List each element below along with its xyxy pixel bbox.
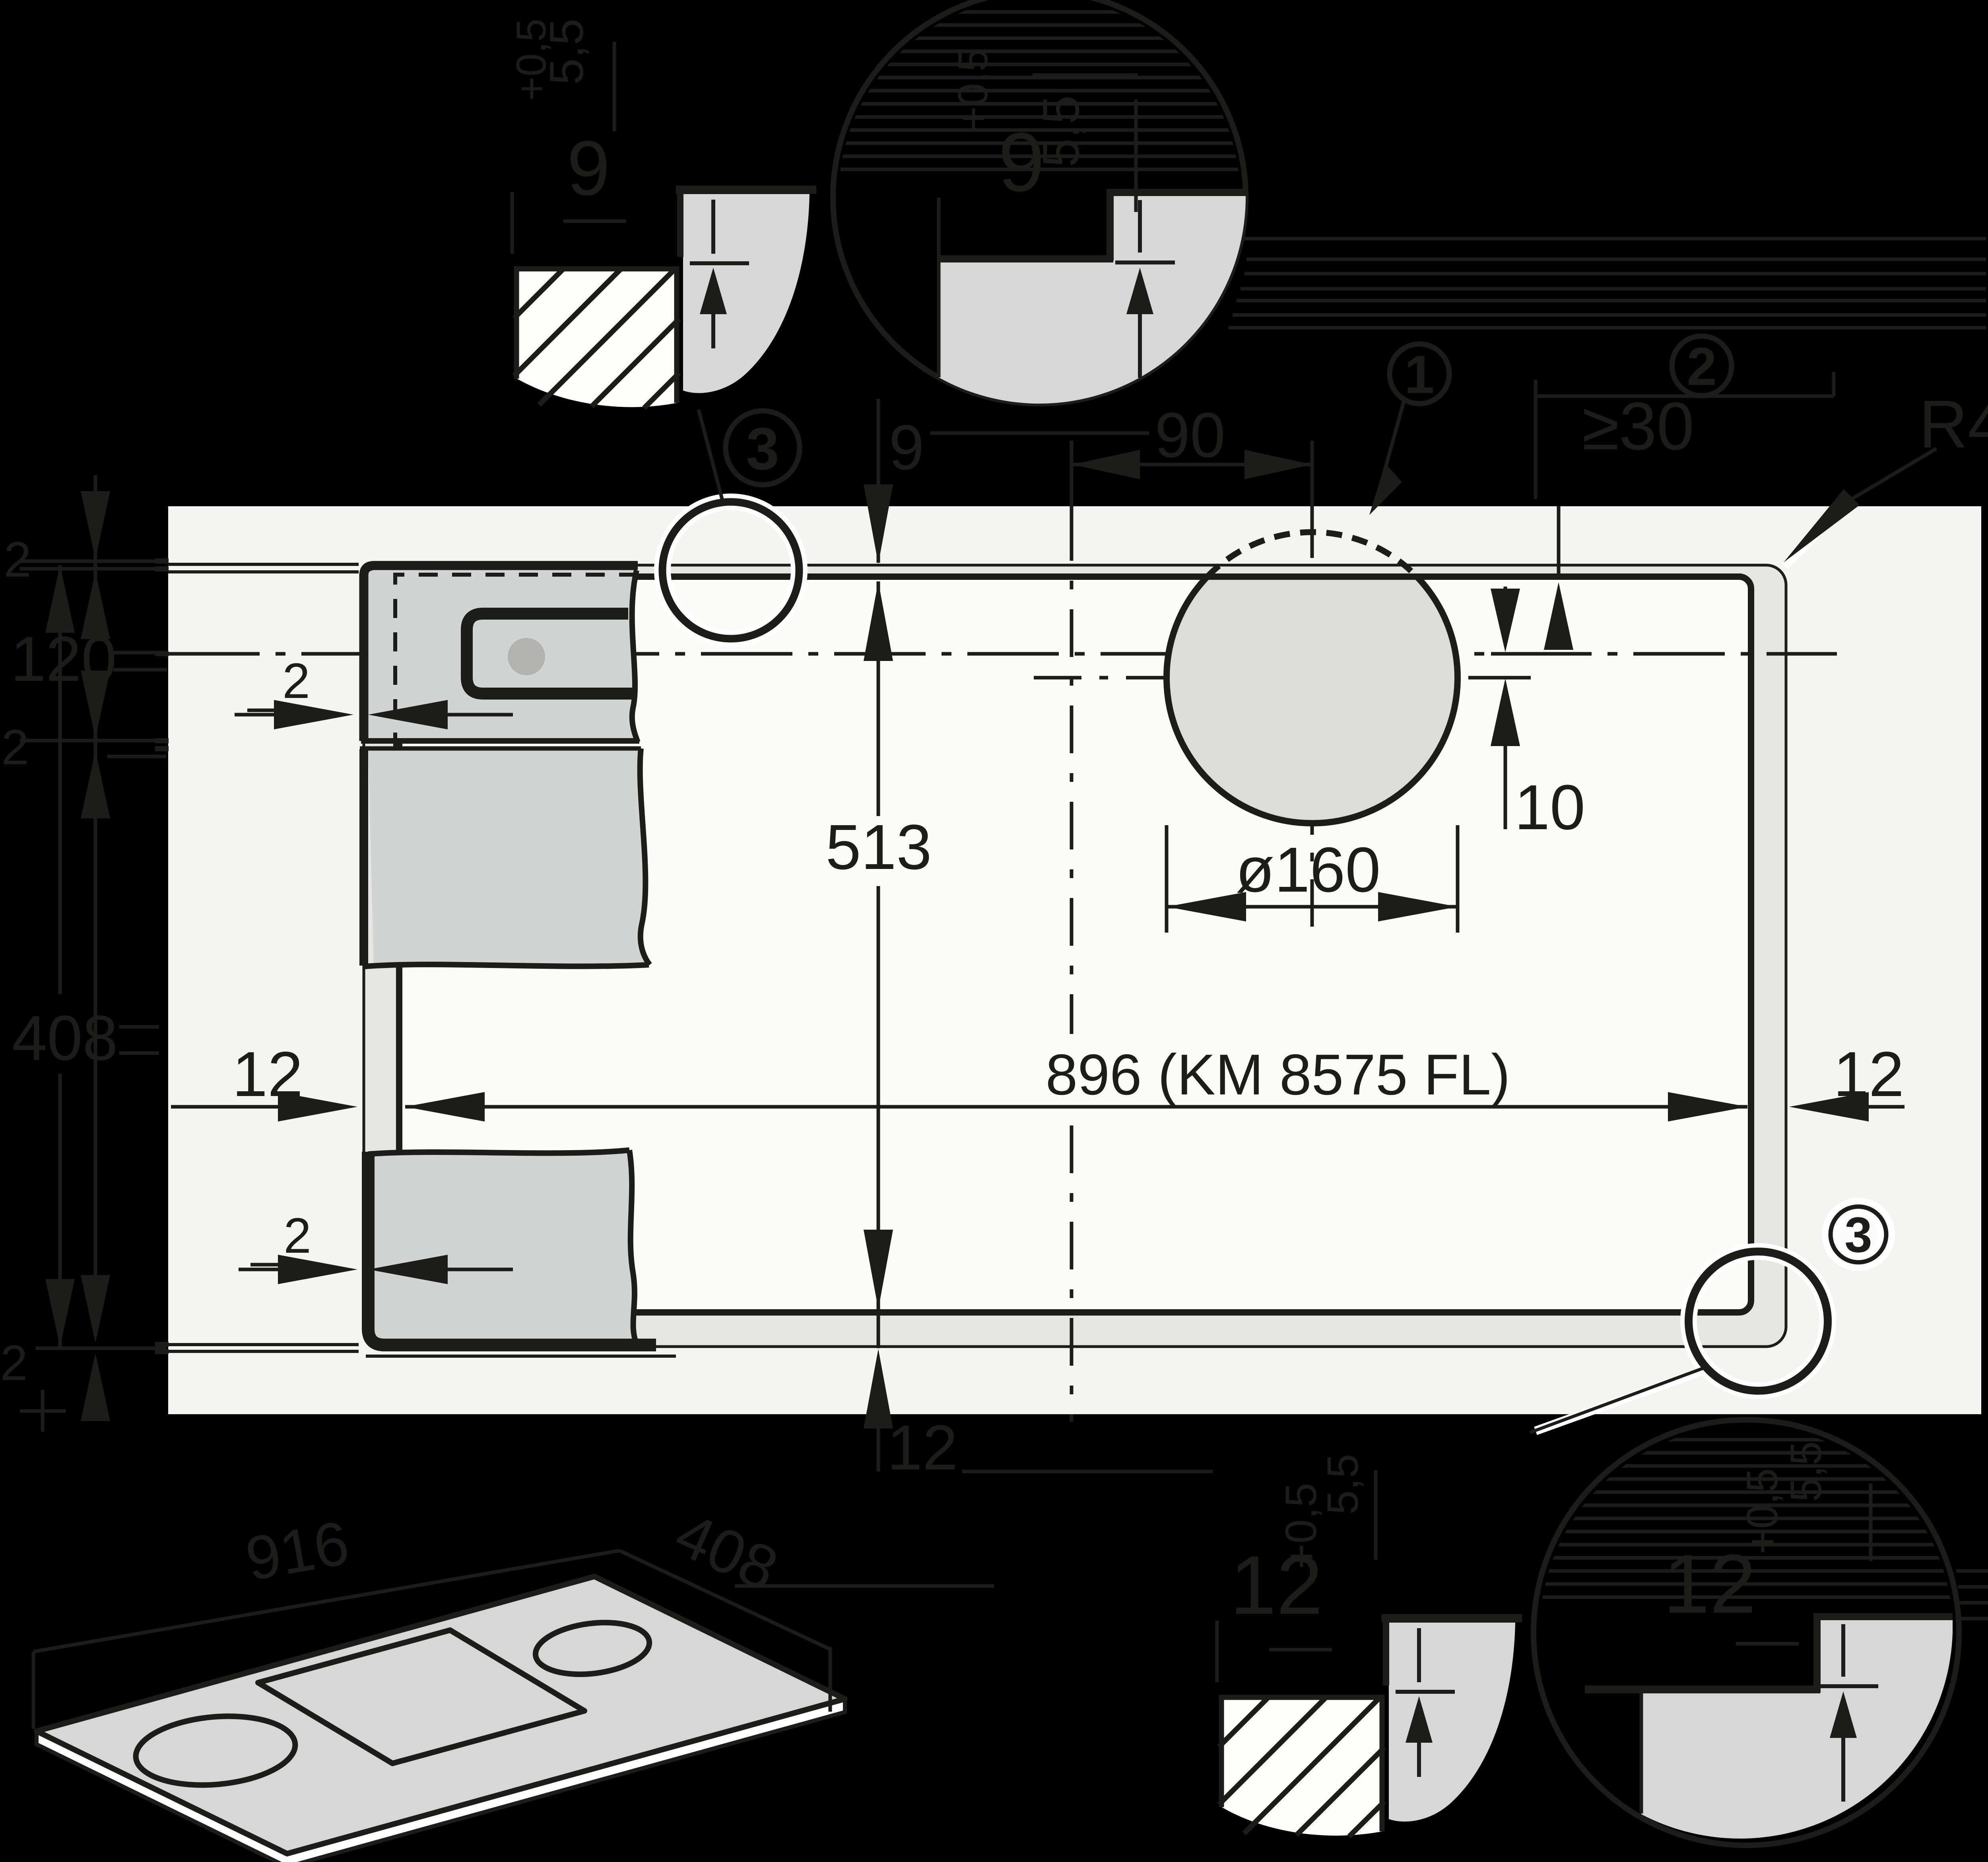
- svg-text:1: 1: [1404, 344, 1434, 404]
- svg-text:2: 2: [283, 1208, 311, 1263]
- svg-text:513: 513: [826, 811, 932, 882]
- svg-text:5,5: 5,5: [1782, 1441, 1831, 1502]
- svg-text:+0,5: +0,5: [1738, 1468, 1787, 1554]
- svg-text:5,5: 5,5: [1318, 1454, 1367, 1515]
- svg-text:2: 2: [0, 1335, 28, 1391]
- svg-text:5,5: 5,5: [1032, 95, 1090, 167]
- svg-text:ø160: ø160: [1236, 834, 1381, 905]
- svg-text:896 (KM 8575 FL): 896 (KM 8575 FL): [1046, 1042, 1510, 1107]
- svg-text:R4: R4: [1919, 387, 1988, 462]
- svg-text:9: 9: [567, 125, 610, 212]
- svg-text:408: 408: [12, 1002, 118, 1073]
- svg-text:3: 3: [1844, 1207, 1872, 1263]
- svg-text:5,5: 5,5: [540, 19, 593, 85]
- svg-text:≥30: ≥30: [1582, 389, 1694, 464]
- svg-text:3: 3: [746, 415, 779, 482]
- svg-text:+0,5: +0,5: [950, 48, 996, 130]
- svg-text:12: 12: [887, 1412, 958, 1483]
- svg-text:10: 10: [1514, 772, 1585, 843]
- svg-text:2: 2: [1, 720, 29, 775]
- svg-text:2: 2: [282, 653, 310, 709]
- svg-text:2: 2: [4, 532, 31, 587]
- svg-text:120: 120: [11, 623, 117, 694]
- svg-text:9: 9: [889, 412, 924, 483]
- svg-text:90: 90: [1155, 399, 1225, 470]
- svg-text:2: 2: [1687, 336, 1716, 397]
